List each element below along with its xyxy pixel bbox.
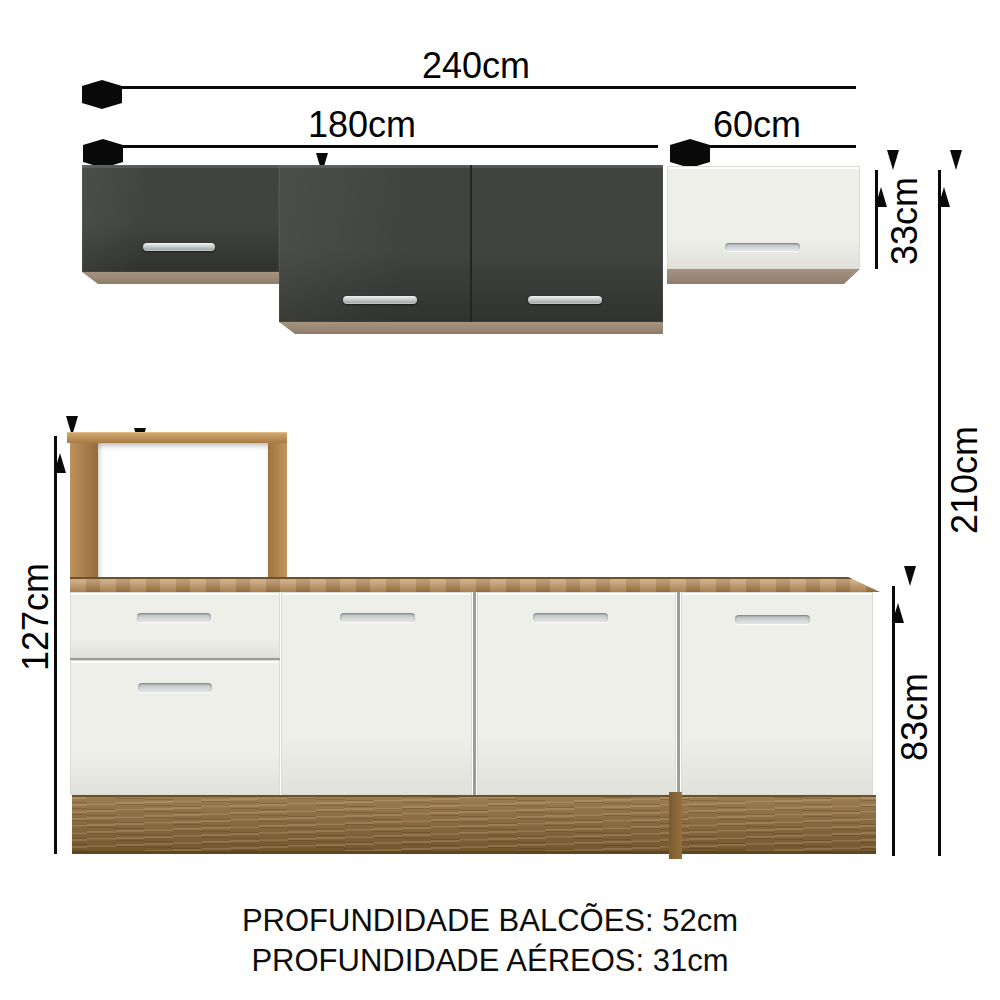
footer-note-wall-depth: PROFUNDIDADE AÉREOS: 31cm [0, 941, 980, 981]
countertop [70, 577, 880, 592]
door-handle [143, 243, 215, 251]
dim-arrow-white-cabinet-height [875, 170, 878, 269]
door-divider [470, 165, 472, 322]
door-handle [528, 296, 602, 304]
cabinet-underside [667, 269, 860, 284]
toe-kick-divider-post [669, 792, 682, 859]
door-divider [473, 592, 476, 795]
wall-cabinet-left-door [82, 165, 279, 272]
wall-cabinet-right-door [667, 166, 860, 269]
cabinet-underside [279, 322, 663, 334]
dim-label-total-height: 210cm [943, 410, 987, 550]
dim-arrow-upper-white-width [670, 145, 856, 148]
dim-label-total-width: 240cm [406, 44, 546, 88]
door-handle [340, 613, 415, 622]
tower-left-panel [70, 443, 98, 590]
toe-kick [72, 795, 876, 854]
door-handle [735, 615, 810, 624]
base-door-2 [477, 592, 676, 795]
tower-right-panel [268, 443, 287, 585]
door-handle [533, 613, 608, 622]
base-door-1 [281, 592, 472, 795]
dim-label-base-cabinet-height: 83cm [893, 647, 937, 787]
cabinet-underside [82, 272, 279, 284]
dim-arrow-total-height [938, 170, 941, 856]
door-divider [677, 592, 680, 795]
dim-arrow-upper-dark-width [83, 145, 658, 148]
door-handle [343, 296, 417, 304]
dim-label-upper-dark-width: 180cm [292, 103, 432, 147]
tower-door [70, 660, 280, 795]
footer-note-counter-depth: PROFUNDIDADE BALCÕES: 52cm [0, 901, 980, 941]
footer-notes: PROFUNDIDADE BALCÕES: 52cm PROFUNDIDADE … [0, 901, 980, 981]
dim-arrow-total-width [82, 86, 856, 89]
tower-top-panel [67, 432, 287, 443]
door-handle [725, 243, 800, 251]
kitchen-dimension-diagram: 240cm 180cm 60cm 49cm 33cm 210cm 127cm 4… [0, 0, 1000, 1000]
tower-drawer [70, 592, 280, 658]
dim-label-white-cabinet-height: 33cm [883, 151, 927, 291]
microwave-niche [98, 443, 268, 583]
dim-label-tower-height: 127cm [14, 547, 58, 687]
door-handle [138, 683, 212, 692]
drawer-handle [137, 613, 211, 622]
